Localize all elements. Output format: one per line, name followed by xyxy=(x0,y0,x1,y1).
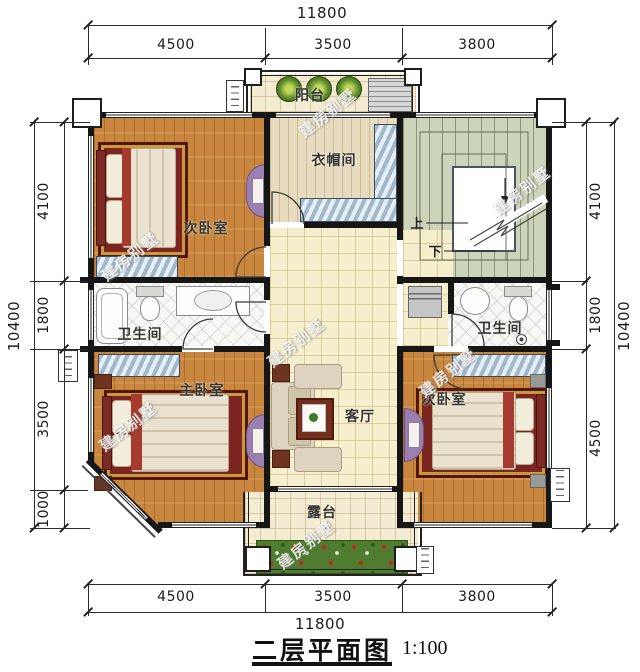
window xyxy=(414,522,532,528)
sink-basin xyxy=(194,290,232,311)
window xyxy=(416,112,534,118)
window xyxy=(88,136,94,258)
room-label-cloakroom: 衣帽间 xyxy=(292,150,376,170)
nightstand xyxy=(530,474,546,488)
stair-up-label: 上 xyxy=(406,213,428,232)
bed-headboard xyxy=(536,394,546,468)
sink-basin xyxy=(460,287,490,315)
dim-ext xyxy=(552,25,553,65)
wall xyxy=(397,277,552,283)
dim-top-seg-1: 4500 xyxy=(146,37,206,53)
room-label-bathroom-left: 卫生间 xyxy=(100,324,180,344)
room-label-master-bedroom: 主卧室 xyxy=(162,380,242,400)
wall xyxy=(264,112,270,246)
balcony-post xyxy=(404,68,422,86)
room-label-bedroom-top-left: 次卧室 xyxy=(166,218,246,238)
dresser-stool xyxy=(252,428,264,454)
wall-nub xyxy=(552,284,560,290)
window-tag xyxy=(226,80,244,112)
drawing-scale: 1:100 xyxy=(402,637,448,660)
terrace-post xyxy=(245,546,271,572)
table-plant xyxy=(309,413,318,422)
nightstand xyxy=(94,374,112,389)
dim-ext xyxy=(88,25,89,65)
terrace-slider-window xyxy=(278,486,392,492)
dresser-stool xyxy=(252,178,264,204)
sofa-seat xyxy=(294,447,342,472)
dim-right-seg-2: 1800 xyxy=(588,287,604,343)
dim-line xyxy=(88,584,552,585)
dim-line xyxy=(88,25,552,26)
dim-top-total: 11800 xyxy=(290,4,354,22)
dim-line xyxy=(64,122,65,528)
stair-down-label: 下 xyxy=(424,241,446,260)
wall xyxy=(88,346,182,352)
window-tag xyxy=(58,350,78,382)
dim-right-seg-3: 4500 xyxy=(588,410,604,466)
dim-right-total: 10400 xyxy=(615,298,633,354)
dim-ext xyxy=(265,584,266,612)
floor-plan-canvas: 阳台 衣帽间 次卧室 卫生间 主卧室 客厅 次卧室 卫生间 露台 上 下 建房别… xyxy=(0,0,640,672)
window xyxy=(88,290,94,340)
sofa-seat xyxy=(294,364,342,389)
nightstand xyxy=(530,374,546,388)
dim-left-seg-3: 3500 xyxy=(36,391,52,447)
wall xyxy=(397,346,434,352)
room-label-bathroom-right: 卫生间 xyxy=(460,318,540,338)
dim-left-seg-4: 1000 xyxy=(36,481,52,537)
dim-bottom-seg-2: 3500 xyxy=(303,589,363,605)
dim-line xyxy=(34,122,35,528)
dim-right-seg-1: 4100 xyxy=(588,173,604,229)
window-tag xyxy=(416,546,434,574)
bed-pillow xyxy=(514,432,534,465)
bed-pillow xyxy=(514,398,534,431)
dim-ext xyxy=(402,28,403,65)
bed-blanket xyxy=(503,392,514,468)
dim-top-seg-3: 3800 xyxy=(447,37,507,53)
wall-nub xyxy=(552,340,560,346)
wardrobe xyxy=(300,198,397,222)
dim-ext xyxy=(402,584,403,612)
room-label-living-room: 客厅 xyxy=(334,406,386,426)
dim-ext xyxy=(265,28,266,65)
toilet-bowl xyxy=(140,296,160,321)
wardrobe xyxy=(374,124,397,200)
wall xyxy=(304,222,397,228)
title-underline xyxy=(252,662,392,666)
washing-machine xyxy=(408,286,442,318)
dresser-stool xyxy=(408,422,420,448)
corner-column xyxy=(72,98,102,128)
corner-column xyxy=(536,98,566,128)
dim-top-seg-2: 3500 xyxy=(303,37,363,53)
wall xyxy=(214,346,270,352)
dim-ext xyxy=(30,349,88,350)
dim-line xyxy=(88,612,552,613)
window xyxy=(172,522,256,528)
wall xyxy=(397,112,403,240)
side-table xyxy=(272,450,290,468)
dim-bottom-seg-3: 3800 xyxy=(447,589,507,605)
balcony-post xyxy=(244,68,262,86)
window xyxy=(546,388,552,468)
window-tag xyxy=(550,468,570,502)
bed-blanket xyxy=(122,148,131,246)
dim-left-seg-1: 4100 xyxy=(36,173,52,229)
dim-left-total: 10400 xyxy=(5,298,23,354)
dim-line xyxy=(88,58,552,59)
window xyxy=(546,290,552,340)
wall xyxy=(448,283,454,314)
window xyxy=(106,112,252,118)
dim-line xyxy=(586,122,587,528)
bed-headboard xyxy=(96,150,106,246)
dim-ext xyxy=(30,281,88,282)
dim-bottom-seg-1: 4500 xyxy=(146,589,206,605)
dim-left-seg-2: 1800 xyxy=(36,287,52,343)
